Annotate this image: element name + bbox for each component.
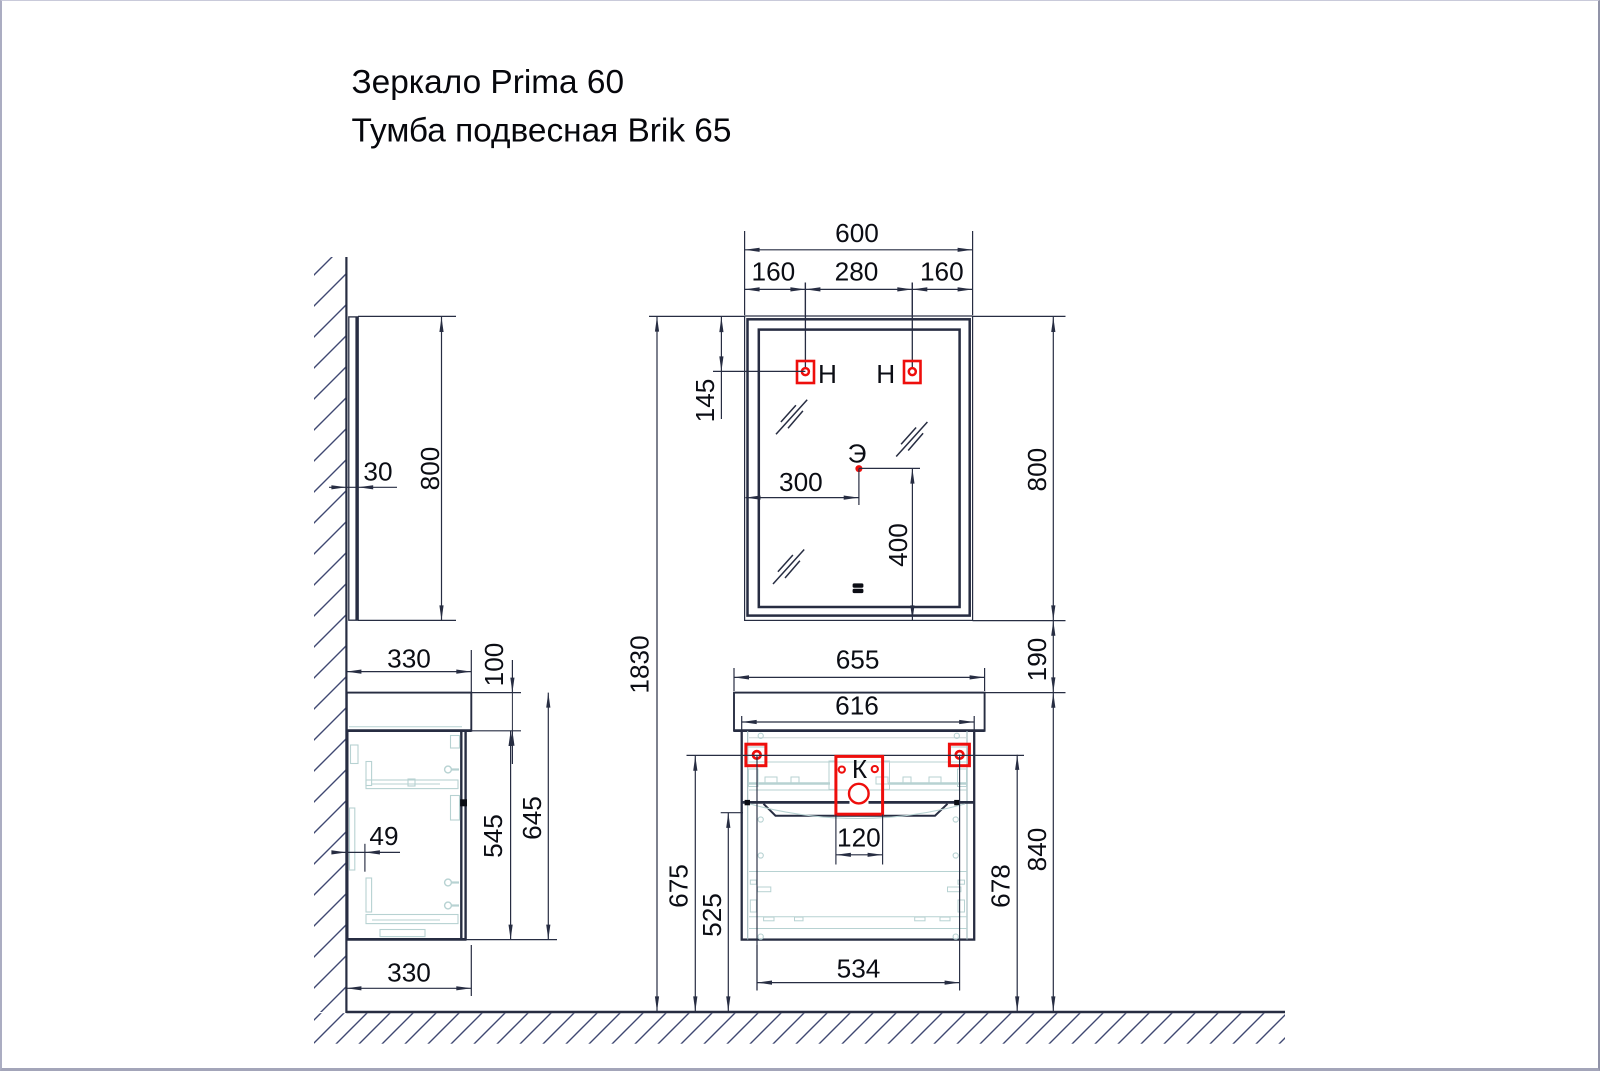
svg-text:600: 600: [835, 218, 879, 248]
svg-text:К: К: [852, 754, 868, 784]
svg-text:534: 534: [837, 954, 881, 984]
svg-text:Тумба подвесная Brik 65: Тумба подвесная Brik 65: [352, 113, 732, 150]
svg-text:280: 280: [835, 256, 879, 286]
svg-text:30: 30: [363, 457, 392, 487]
svg-text:1830: 1830: [625, 635, 655, 693]
svg-text:330: 330: [387, 643, 431, 673]
svg-text:160: 160: [752, 256, 796, 286]
svg-text:616: 616: [835, 691, 879, 721]
svg-text:190: 190: [1022, 638, 1052, 682]
svg-text:678: 678: [986, 864, 1016, 908]
svg-text:100: 100: [479, 643, 509, 687]
svg-text:49: 49: [369, 821, 398, 851]
svg-text:655: 655: [836, 644, 880, 674]
svg-text:160: 160: [920, 256, 964, 286]
svg-text:Зеркало Prima 60: Зеркало Prima 60: [352, 64, 625, 101]
svg-text:800: 800: [1022, 448, 1052, 492]
svg-text:145: 145: [690, 379, 720, 423]
svg-text:Э: Э: [848, 439, 867, 469]
svg-text:840: 840: [1022, 828, 1052, 872]
svg-text:525: 525: [697, 893, 727, 937]
svg-text:Н: Н: [818, 359, 837, 389]
svg-text:800: 800: [415, 447, 445, 491]
svg-text:545: 545: [478, 814, 508, 858]
svg-text:400: 400: [883, 523, 913, 567]
svg-text:120: 120: [837, 823, 881, 853]
svg-text:645: 645: [517, 796, 547, 840]
svg-text:675: 675: [664, 864, 694, 908]
svg-text:300: 300: [779, 467, 823, 497]
svg-text:330: 330: [387, 958, 431, 988]
svg-text:Н: Н: [876, 359, 895, 389]
